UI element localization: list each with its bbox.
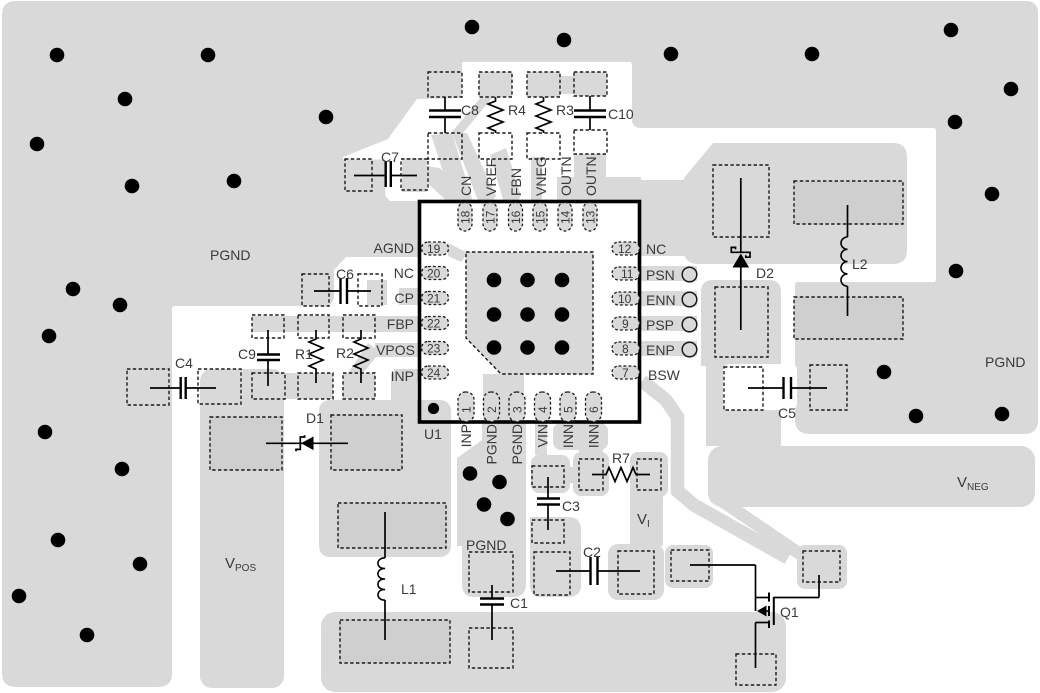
svg-text:BSW: BSW [648,367,681,383]
svg-text:23: 23 [427,342,441,356]
svg-text:R3: R3 [556,102,574,118]
svg-text:8: 8 [622,342,629,356]
svg-text:1: 1 [460,406,474,413]
svg-text:PGND: PGND [210,247,250,263]
svg-text:R4: R4 [508,102,526,118]
svg-text:4: 4 [536,406,550,413]
svg-text:22: 22 [427,317,441,331]
svg-text:PGND: PGND [985,354,1025,370]
svg-text:C4: C4 [175,355,193,371]
svg-text:VIN: VIN [535,424,551,447]
svg-text:INP: INP [391,368,414,384]
svg-text:14: 14 [559,210,573,224]
svg-text:C5: C5 [778,405,796,421]
svg-text:11: 11 [621,267,634,281]
svg-text:C9: C9 [238,346,256,362]
svg-text:INP: INP [458,424,474,447]
svg-text:PSP: PSP [646,317,674,333]
svg-text:13: 13 [584,210,598,224]
svg-text:C7: C7 [381,149,399,165]
svg-text:C2: C2 [583,544,601,560]
svg-text:FBP: FBP [387,316,414,332]
svg-text:6: 6 [587,406,601,413]
svg-text:D2: D2 [756,265,774,281]
svg-text:VNEG: VNEG [533,156,549,196]
svg-text:L2: L2 [852,256,868,272]
svg-text:C1: C1 [510,595,528,611]
svg-text:R2: R2 [336,345,354,361]
svg-text:C10: C10 [608,106,634,122]
svg-text:17: 17 [484,210,498,224]
svg-text:PSN: PSN [646,267,675,283]
svg-text:FBN: FBN [508,168,524,196]
svg-text:OUTN: OUTN [583,156,599,196]
svg-text:INN: INN [586,424,602,448]
svg-text:VREF: VREF [483,159,499,196]
svg-text:CP: CP [395,290,414,306]
svg-text:Q1: Q1 [780,604,799,620]
svg-text:INN: INN [560,424,576,448]
svg-text:3: 3 [511,406,525,413]
svg-text:ENN: ENN [646,292,676,308]
svg-text:18: 18 [459,210,473,224]
svg-text:5: 5 [562,406,576,413]
svg-text:NC: NC [394,265,414,281]
svg-text:19: 19 [427,242,441,256]
svg-text:U1: U1 [424,426,442,442]
svg-text:16: 16 [509,210,523,224]
svg-text:VPOS: VPOS [376,342,415,358]
svg-text:15: 15 [534,210,548,224]
svg-text:7: 7 [622,366,629,380]
svg-text:12: 12 [618,242,632,256]
svg-text:D1: D1 [306,410,324,426]
svg-text:9: 9 [622,317,629,331]
svg-text:NC: NC [646,241,666,257]
svg-text:AGND: AGND [374,240,414,256]
svg-text:C3: C3 [562,498,580,514]
svg-text:ENP: ENP [646,342,675,358]
svg-text:R7: R7 [612,450,630,466]
svg-text:21: 21 [427,292,441,306]
svg-text:C8: C8 [461,102,479,118]
svg-text:PGND: PGND [484,424,500,464]
svg-text:10: 10 [618,292,632,306]
svg-text:R1: R1 [295,346,313,362]
svg-text:24: 24 [427,366,441,380]
svg-text:L1: L1 [401,581,417,597]
svg-text:20: 20 [427,267,441,281]
svg-text:PGND: PGND [466,537,506,553]
svg-text:C6: C6 [336,266,354,282]
svg-text:OUTN: OUTN [558,156,574,196]
svg-text:PGND: PGND [509,424,525,464]
svg-text:2: 2 [485,406,499,413]
svg-text:CN: CN [458,176,474,196]
